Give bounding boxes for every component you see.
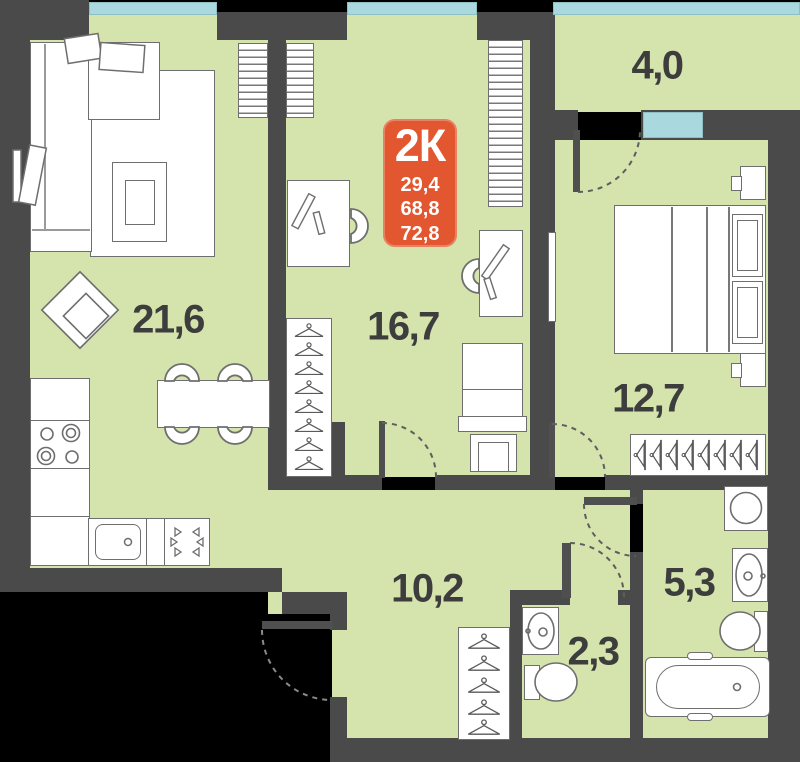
badge-living-area: 68,8 xyxy=(383,197,457,221)
window-living xyxy=(89,2,217,15)
area-label-wc: 2,3 xyxy=(567,630,618,675)
dresser-lower xyxy=(462,389,523,418)
nightstand xyxy=(740,166,766,200)
shelving-rack xyxy=(488,40,523,207)
door-leaf-bathroom xyxy=(584,497,637,505)
area-label-hallway: 10,2 xyxy=(391,567,463,612)
kitchen-corner-counter xyxy=(30,516,90,566)
wall-segment xyxy=(330,738,800,762)
kitchen-cabinet xyxy=(30,378,90,422)
pillow-inner xyxy=(737,220,758,271)
bed-fold-line xyxy=(706,207,708,352)
area-label-living-kitchen: 21,6 xyxy=(132,298,204,343)
wall-segment xyxy=(330,422,345,475)
sofa-left-section xyxy=(30,42,92,252)
sofa-corner-section xyxy=(88,42,160,120)
bath-toilet-tank xyxy=(754,611,768,652)
wall-segment xyxy=(435,475,552,490)
door-leaf-balcony xyxy=(573,130,580,192)
stool-seat xyxy=(478,442,509,472)
nightstand-knob xyxy=(731,363,742,378)
nightstand xyxy=(740,353,766,387)
door-leaf-bedroom xyxy=(549,422,555,478)
bed-fold-line xyxy=(671,207,673,352)
wall-segment xyxy=(768,110,800,762)
door-leaf-children xyxy=(379,421,385,478)
kitchen-cabinet xyxy=(30,468,90,518)
sofa-seam xyxy=(44,44,46,229)
coat-rack xyxy=(458,627,510,740)
wc-toilet-tank xyxy=(524,665,540,700)
wall-segment xyxy=(0,568,282,592)
area-label-balcony: 4,0 xyxy=(631,44,682,89)
area-label-bedroom: 12,7 xyxy=(612,377,684,422)
badge-type-label: 2К xyxy=(383,119,457,173)
sofa-seam xyxy=(32,229,90,231)
coffee-table-top xyxy=(125,180,155,225)
nightstand-knob xyxy=(731,176,742,191)
wall-segment xyxy=(630,552,643,740)
bathtub-handle xyxy=(687,652,713,660)
bed-fold-line xyxy=(728,207,730,352)
wc-sink-cabinet xyxy=(522,607,559,655)
wall-segment xyxy=(510,590,522,738)
wall-segment xyxy=(0,0,30,592)
apartment-type-badge: 2К 29,4 68,8 72,8 xyxy=(383,119,457,247)
kitchen-counter-unit xyxy=(146,518,166,566)
bath-sink-cabinet xyxy=(732,548,768,602)
door-leaf-entrance xyxy=(262,621,333,629)
area-label-bathroom: 5,3 xyxy=(663,561,714,606)
kitchen-sink-basin xyxy=(95,524,141,560)
area-label-children-room: 16,7 xyxy=(367,305,439,350)
tv-bedroom xyxy=(548,232,556,322)
window-balcony-glazing xyxy=(553,2,800,15)
desk-right xyxy=(479,230,523,317)
badge-total-area: 72,8 xyxy=(383,222,457,246)
wall-segment xyxy=(268,475,382,490)
bathtub-inner xyxy=(656,665,760,709)
kitchen-dishwasher xyxy=(164,518,210,566)
wall-segment xyxy=(282,592,347,614)
window-bedroom-balcony xyxy=(643,112,703,138)
pillow-inner xyxy=(737,287,758,338)
wall-segment xyxy=(268,15,286,477)
dining-table xyxy=(157,380,270,428)
window-children xyxy=(347,2,477,15)
wardrobe-children xyxy=(286,318,332,477)
desk-left xyxy=(287,180,350,267)
wardrobe-bedroom xyxy=(630,434,766,476)
washing-machine xyxy=(724,486,768,531)
apartment-floorplan: 21,6 16,7 12,7 10,2 5,3 2,3 4,0 2К 29,4 … xyxy=(0,0,800,762)
bookshelf-living-side xyxy=(238,43,268,118)
dresser xyxy=(462,343,523,391)
wall-segment xyxy=(618,590,630,605)
door-leaf-wc xyxy=(562,543,571,598)
badge-rooms-area: 29,4 xyxy=(383,173,457,197)
dresser-drawer xyxy=(458,416,527,432)
bathtub-handle xyxy=(687,713,713,721)
kitchen-stove xyxy=(30,420,90,470)
bookshelf-children-side xyxy=(286,43,314,118)
